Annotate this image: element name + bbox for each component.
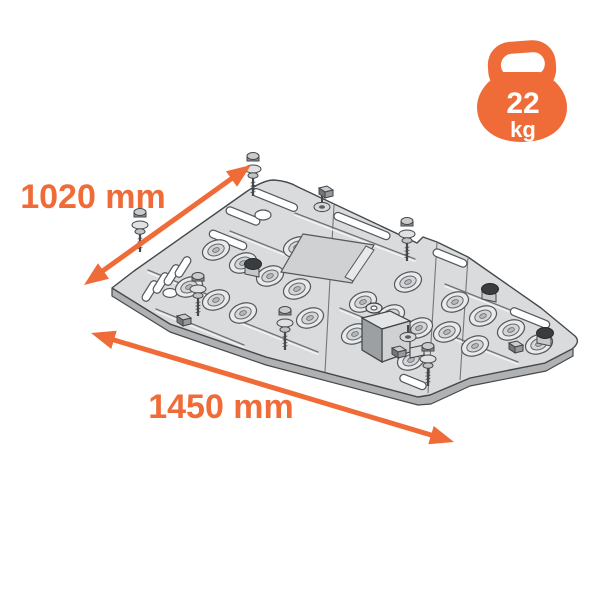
grommet-center	[405, 335, 411, 339]
weight-value: 22	[506, 87, 539, 120]
bolt-thread	[251, 182, 256, 183]
bolt-washer	[399, 230, 415, 238]
stop-cap	[537, 328, 554, 339]
skid-plate-illustration	[112, 153, 577, 406]
bolt-nut	[280, 327, 290, 333]
product-dimension-diagram: 1020 mm 1450 mm 22 kg	[0, 0, 600, 600]
bolt-nut	[135, 229, 145, 235]
bolt-nut	[423, 363, 433, 369]
clip-side	[325, 190, 333, 198]
kettlebell-icon: 22 kg	[477, 39, 567, 142]
bolt-head-top	[401, 218, 413, 225]
bolt-washer	[132, 221, 148, 229]
clip-side	[183, 318, 191, 326]
arrowhead-left-icon	[88, 324, 116, 349]
length-dimension-label: 1450 mm	[148, 388, 294, 426]
bolt-nut	[193, 293, 203, 299]
bolt-washer	[190, 285, 206, 293]
stop-cap	[245, 259, 262, 270]
bolt-head-top	[279, 307, 291, 314]
rubber-stop	[245, 259, 262, 278]
width-dimension-label: 1020 mm	[20, 178, 166, 216]
grommet-center	[319, 205, 325, 209]
technical-drawing-canvas: 1020 mm 1450 mm 22 kg	[0, 0, 600, 600]
bolt-washer	[420, 355, 436, 363]
bolt-washer	[277, 319, 293, 327]
clip-side	[515, 345, 523, 353]
bolt-head-top	[247, 153, 259, 160]
bolt-thread	[138, 238, 143, 239]
weight-unit: kg	[510, 117, 536, 142]
rubber-stop	[482, 284, 499, 303]
rubber-stop	[537, 328, 554, 347]
arrowhead-down-right-icon	[428, 426, 456, 451]
bolt-nut	[402, 238, 412, 244]
bracket-clamp-hole	[371, 306, 377, 310]
stop-cap	[482, 284, 499, 295]
oval-hole	[255, 210, 271, 220]
bolt-head-top	[422, 343, 434, 350]
bolt-head-top	[192, 273, 204, 280]
bolt-nut	[248, 173, 258, 179]
clip-side	[398, 350, 406, 358]
